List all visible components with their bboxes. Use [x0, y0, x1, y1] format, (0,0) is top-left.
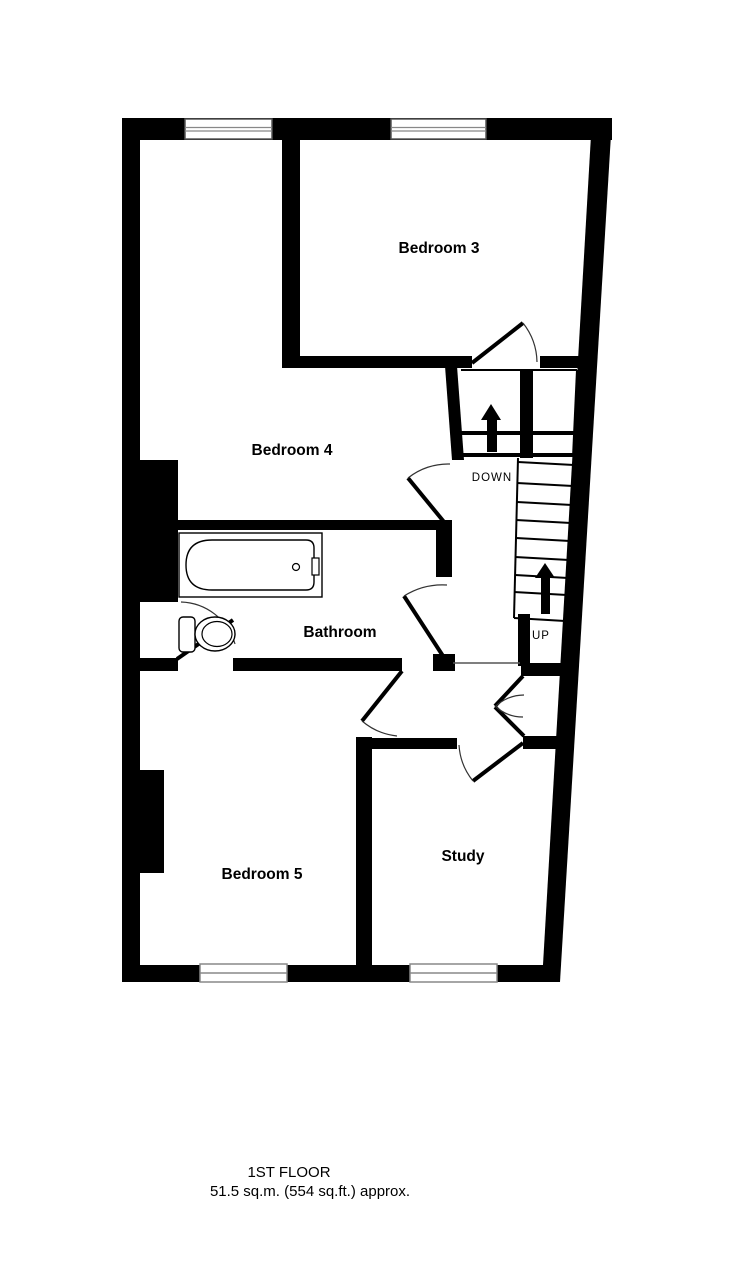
- window-bottom-right: [410, 964, 497, 982]
- wall-hall-slant: [445, 366, 464, 460]
- wall-stair-divider: [520, 370, 533, 458]
- caption-floor-name: 1ST FLOOR: [247, 1164, 330, 1181]
- chimney-bathroom: [138, 460, 178, 602]
- stairs-up-label: UP: [532, 630, 550, 642]
- up-arrow-icon: [535, 563, 555, 614]
- room-label-bedroom4: Bedroom 4: [252, 442, 333, 459]
- room-label-bedroom3: Bedroom 3: [399, 240, 480, 257]
- caption-floor-area: 51.5 sq.m. (554 sq.ft.) approx.: [210, 1183, 410, 1200]
- down-arrow-icon: [481, 404, 501, 452]
- wall-bathroom-south: [233, 658, 402, 671]
- wall-bed3-south-east: [540, 356, 584, 368]
- wall-bathroom-east-stub: [436, 520, 452, 577]
- stairs-down-label: DOWN: [472, 472, 512, 484]
- door-leaf-bedroom5: [362, 671, 402, 721]
- chimney-bedroom5: [138, 770, 164, 873]
- door-leaf-cupboard-bottom: [495, 707, 524, 736]
- wall-landing-cap: [433, 654, 455, 671]
- door-leaf-study: [473, 743, 523, 781]
- door-leaf-cupboard-top: [495, 676, 523, 706]
- door-arc-study: [459, 745, 473, 781]
- toilet-icon: [179, 617, 235, 652]
- floorplan-canvas: Bedroom 3 Bedroom 4 Bathroom Bedroom 5 S…: [0, 0, 736, 1280]
- wall-right-slanted: [542, 118, 612, 982]
- wall-bathroom-south-west: [140, 658, 178, 671]
- room-label-bedroom5: Bedroom 5: [222, 866, 303, 883]
- window-top-left: [185, 119, 272, 139]
- room-label-bathroom: Bathroom: [303, 624, 376, 641]
- wall-bed3-south: [282, 356, 472, 368]
- window-top-right: [391, 119, 486, 139]
- wall-left: [122, 118, 140, 982]
- door-arc-bedroom5: [362, 721, 397, 736]
- wall-cupboard-stub-south: [523, 736, 570, 749]
- bathtub-icon: [179, 533, 322, 597]
- room-label-study: Study: [441, 848, 484, 865]
- door-arc-bedroom3: [523, 323, 537, 362]
- door-leaf-bedroom3: [472, 323, 523, 363]
- wall-study-north-west: [356, 738, 457, 749]
- door-arc-bedroom4: [408, 464, 450, 478]
- door-leaf-bathroom: [404, 596, 443, 656]
- wall-bed3-bed4-divider: [282, 140, 300, 368]
- stairs-down: [457, 370, 577, 457]
- floorplan-page: Bedroom 3 Bedroom 4 Bathroom Bedroom 5 S…: [0, 0, 736, 1280]
- door-arc-bathroom: [404, 585, 447, 596]
- wall-stair-side: [518, 614, 530, 666]
- wall-bathroom-north: [140, 520, 438, 530]
- wall-bed5-study-divider: [356, 737, 372, 967]
- window-bottom-left: [200, 964, 287, 982]
